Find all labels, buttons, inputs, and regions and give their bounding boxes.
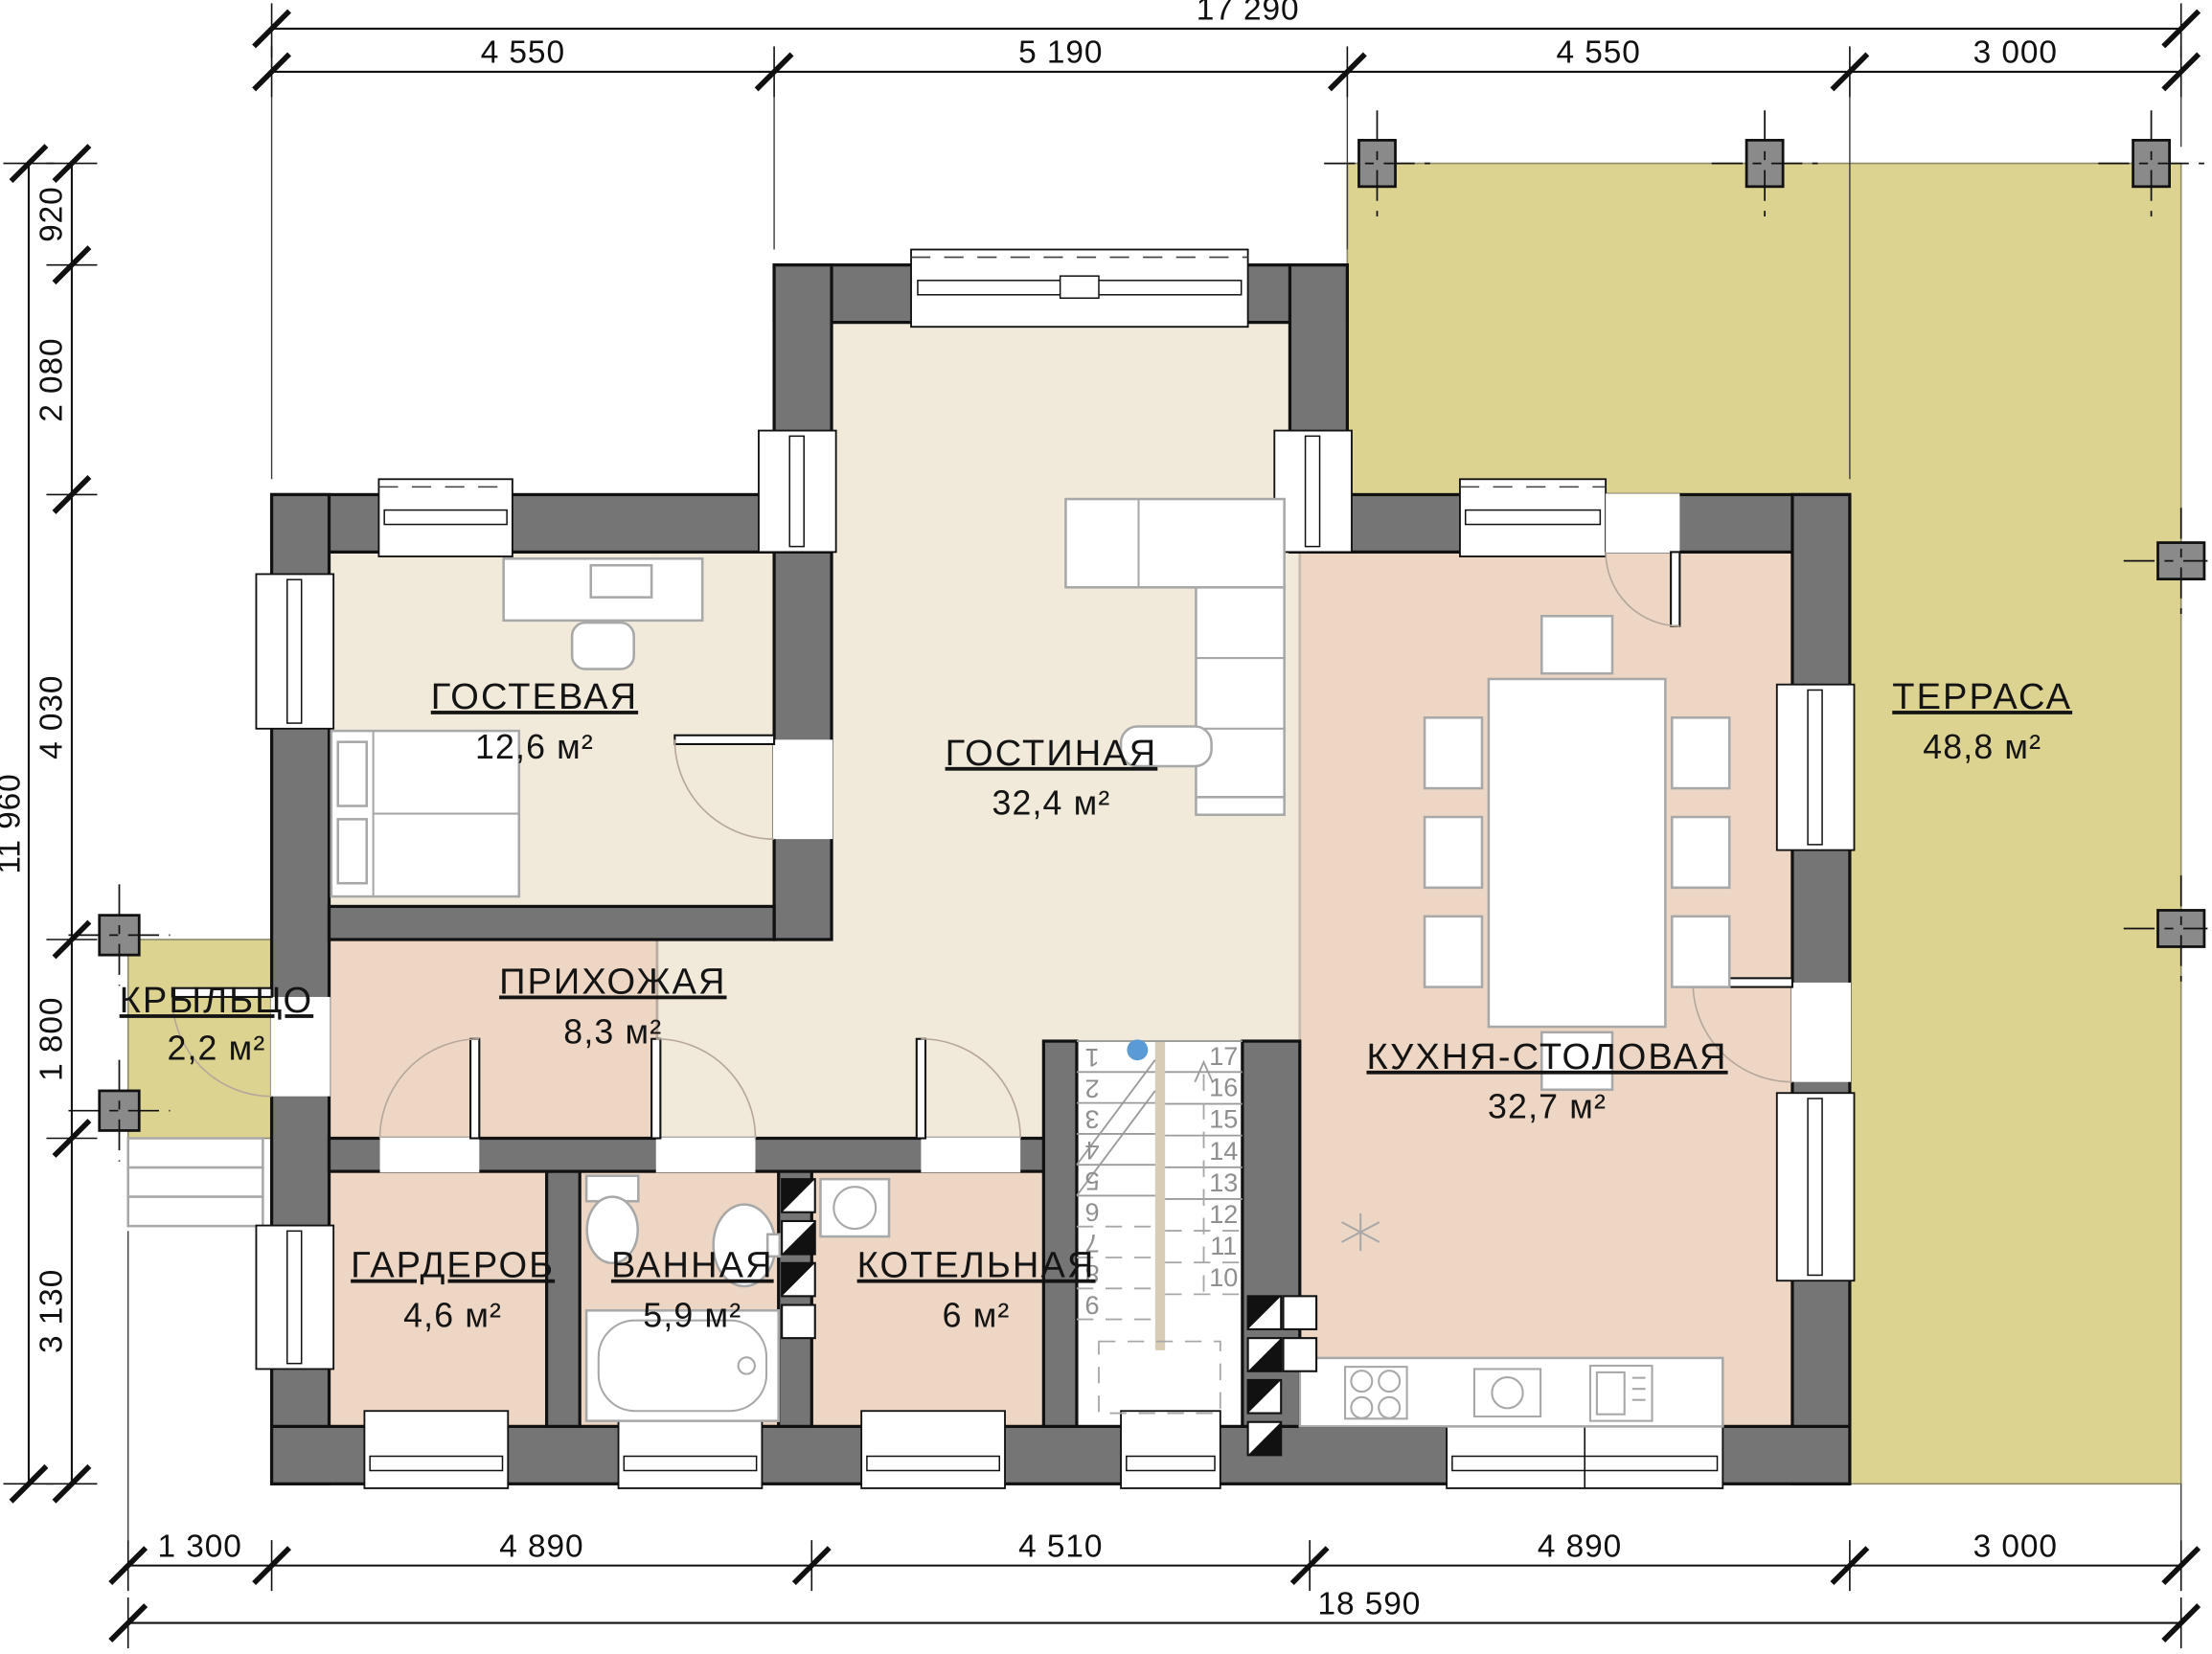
svg-text:6: 6 [1085,1198,1100,1228]
kitchen-counter [1300,1358,1723,1426]
svg-text:32,4 м²: 32,4 м² [992,784,1110,823]
svg-text:17: 17 [1209,1041,1238,1071]
svg-text:5 190: 5 190 [1018,35,1103,71]
svg-text:8,3 м²: 8,3 м² [563,1012,662,1051]
svg-text:4 550: 4 550 [481,35,565,71]
boiler-unit [821,1179,889,1236]
svg-text:ПРИХОЖАЯ: ПРИХОЖАЯ [499,962,726,1002]
svg-text:4 550: 4 550 [1557,35,1641,71]
svg-text:4 030: 4 030 [34,675,70,759]
window-living-right [1274,431,1352,553]
svg-text:4: 4 [1085,1136,1100,1166]
svg-text:2: 2 [1085,1074,1100,1103]
svg-text:12: 12 [1209,1199,1238,1229]
svg-text:1 300: 1 300 [158,1529,242,1564]
svg-text:3 000: 3 000 [1973,35,2058,71]
dim-bottom-total: 18 590 [110,1586,2199,1648]
svg-text:11: 11 [1210,1231,1237,1260]
wall-stair-left [1043,1041,1077,1426]
svg-text:КРЫЛЬЦО: КРЫЛЬЦО [120,981,314,1021]
svg-text:3: 3 [1085,1105,1100,1135]
svg-text:16: 16 [1209,1073,1238,1102]
porch-steps [128,1139,263,1227]
svg-text:4 890: 4 890 [1538,1529,1622,1564]
svg-text:32,7 м²: 32,7 м² [1488,1088,1607,1126]
porch-step [128,1139,263,1168]
svg-text:ТЕРРАСА: ТЕРРАСА [1892,677,2072,717]
wall-wardrobe-bath [547,1171,581,1426]
svg-text:17 290: 17 290 [1197,0,1300,28]
window-bath-bottom [619,1411,763,1488]
window-boiler-bottom [861,1411,1005,1488]
window-living-top [911,250,1248,328]
window-guest-left [256,574,333,728]
svg-text:ГАРДЕРОБ: ГАРДЕРОБ [351,1246,555,1286]
svg-text:2 080: 2 080 [34,337,70,421]
svg-text:ГОСТИНАЯ: ГОСТИНАЯ [946,734,1158,774]
svg-text:4 890: 4 890 [499,1529,583,1564]
porch-step [128,1167,263,1197]
svg-text:1: 1 [1085,1043,1100,1073]
svg-text:11 960: 11 960 [0,773,28,873]
window-wardrobe-bottom [364,1411,508,1488]
svg-text:КОТЕЛЬНАЯ: КОТЕЛЬНАЯ [857,1246,1096,1286]
dim-left-segments: 920 2 080 4 030 1 800 3 130 [34,146,98,1502]
svg-text:ГОСТЕВАЯ: ГОСТЕВАЯ [431,677,638,717]
window-kitchen-right-lower [1777,1093,1855,1280]
svg-text:15: 15 [1209,1104,1238,1134]
window-kitchen-right-upper [1777,685,1855,850]
svg-text:3 130: 3 130 [34,1269,70,1353]
floor-plan-drawing: 1 2 3 4 5 6 7 8 9 10 11 12 13 14 15 16 1… [0,0,2212,1654]
window-wardrobe-left [256,1226,333,1370]
window-guest-top [378,479,512,556]
svg-text:5: 5 [1085,1167,1100,1196]
svg-text:48,8 м²: 48,8 м² [1923,728,2041,766]
svg-text:1 800: 1 800 [34,997,70,1081]
window-stair-bottom [1121,1411,1220,1488]
svg-text:5,9 м²: 5,9 м² [643,1297,741,1335]
svg-text:3 000: 3 000 [1973,1529,2058,1564]
svg-text:13: 13 [1209,1167,1238,1197]
svg-text:4 510: 4 510 [1018,1529,1103,1564]
stair-stringer [1155,1041,1165,1350]
svg-text:920: 920 [34,186,70,242]
svg-text:9: 9 [1085,1290,1100,1320]
svg-text:12,6 м²: 12,6 м² [475,728,594,766]
floor-plan-page: 1 2 3 4 5 6 7 8 9 10 11 12 13 14 15 16 1… [0,0,2212,1654]
svg-text:2,2 м²: 2,2 м² [167,1030,265,1068]
svg-text:ВАННАЯ: ВАННАЯ [611,1246,774,1286]
svg-text:10: 10 [1209,1262,1238,1292]
wall-top-left [272,494,775,552]
svg-text:18 590: 18 590 [1318,1586,1422,1621]
svg-text:14: 14 [1209,1136,1238,1166]
wall-guest-bottom [330,906,775,940]
svg-text:6 м²: 6 м² [943,1297,1011,1335]
svg-text:4,6 м²: 4,6 м² [403,1297,502,1335]
stair-start-dot [1127,1039,1148,1060]
svg-text:КУХНЯ-СТОЛОВАЯ: КУХНЯ-СТОЛОВАЯ [1366,1037,1727,1077]
window-kitchen-top [1460,479,1606,556]
window-living-left [759,431,836,553]
porch-step [128,1197,263,1227]
